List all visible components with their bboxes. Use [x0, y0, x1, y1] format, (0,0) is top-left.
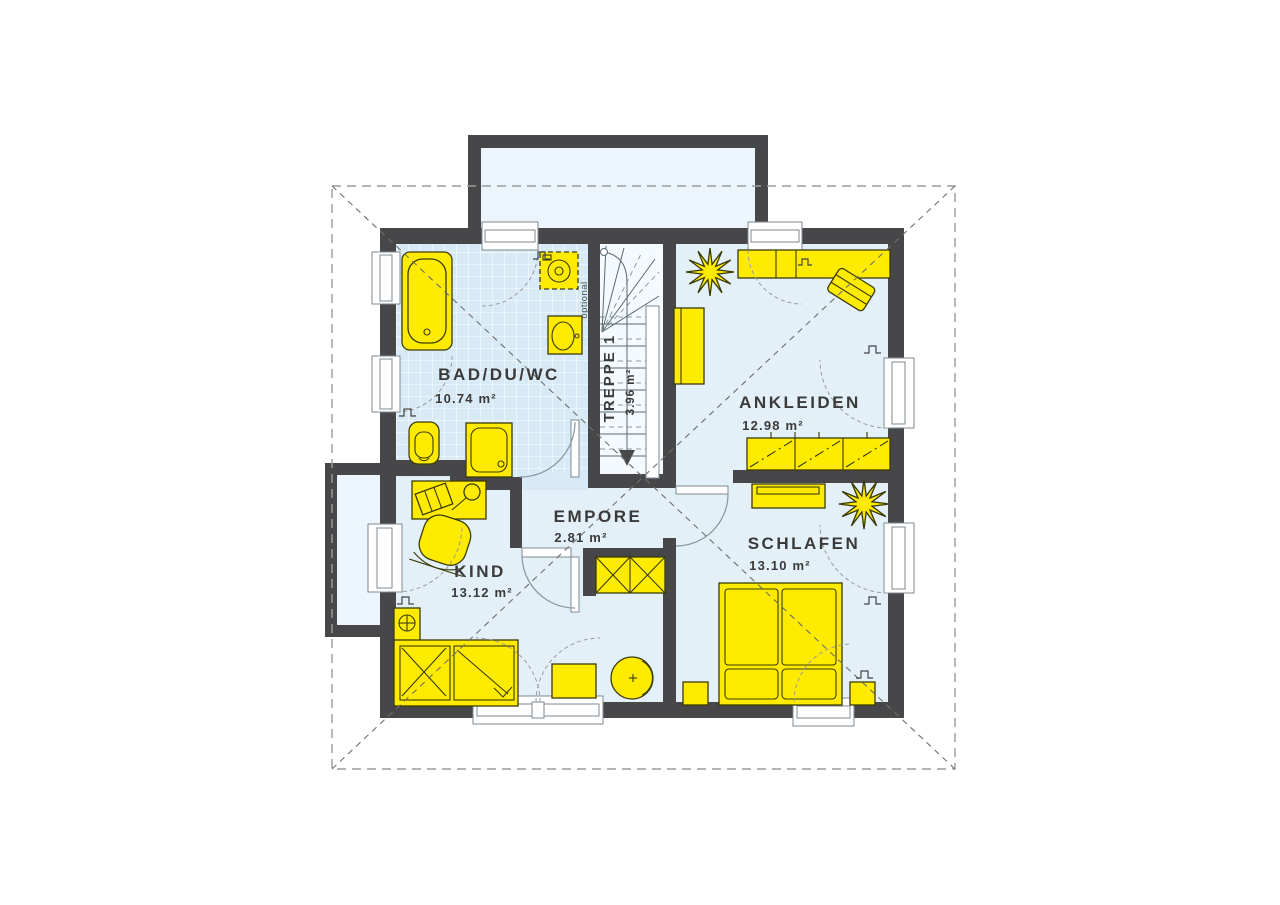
sideboard: [752, 484, 825, 508]
wall-stair-bottom: [588, 474, 676, 488]
wardrobe-row: [747, 432, 890, 470]
wall-stair-left: [588, 244, 600, 476]
room-area-ankleiden: 12.98 m²: [742, 418, 804, 433]
vanity-desk: [738, 250, 890, 278]
room-area-treppe: 3.96 m²: [625, 369, 637, 416]
window-schlafen-right: [884, 523, 914, 593]
nightstand-right: [850, 682, 875, 705]
nightstand-left: [683, 682, 708, 705]
stair-handrail: [646, 306, 659, 478]
optional-label: optional: [579, 281, 590, 318]
window-bath-top: [482, 222, 538, 250]
bathtub: [402, 252, 452, 350]
wall-empore-stub: [583, 548, 596, 596]
window-ankleiden-right: [884, 358, 914, 428]
room-label-empore: EMPORE: [554, 507, 643, 526]
shower: [466, 423, 512, 477]
dormer-floor: [481, 148, 755, 232]
floor-plan-page: BAD/DU/WC 10.74 m² TREPPE 1 3.96 m² ANKL…: [0, 0, 1280, 905]
room-area-bad: 10.74 m²: [435, 391, 497, 406]
room-label-treppe: TREPPE 1: [601, 334, 618, 423]
wardrobe-tall: [674, 308, 704, 384]
double-bed: [719, 583, 842, 705]
floor-plan-svg: BAD/DU/WC 10.74 m² TREPPE 1 3.96 m² ANKL…: [0, 0, 1280, 905]
room-label-schlafen: SCHLAFEN: [748, 534, 861, 553]
desk-lamp: [464, 484, 480, 500]
room-area-kind: 13.12 m²: [451, 585, 513, 600]
room-area-empore: 2.81 m²: [554, 530, 607, 545]
kind-desk: [412, 481, 486, 519]
kind-bed: [394, 640, 518, 706]
room-label-ankleiden: ANKLEIDEN: [739, 393, 861, 412]
toilet: [409, 422, 439, 464]
bath-sink: [548, 316, 582, 354]
window-bath-left-2: [372, 356, 400, 412]
wall-empore-west: [510, 477, 522, 548]
room-label-kind: KIND: [454, 562, 506, 581]
window-kind-balcony-door: [368, 524, 402, 592]
window-ankleiden-top: [748, 222, 802, 250]
room-label-bad: BAD/DU/WC: [438, 365, 560, 384]
armchair: [611, 657, 653, 699]
stool: [552, 664, 596, 698]
wall-ankleiden-south: [733, 470, 893, 483]
window-bath-left-1: [372, 252, 400, 304]
room-area-schlafen: 13.10 m²: [749, 558, 811, 573]
empore-cabinet: [596, 557, 665, 593]
washing-machine-optional: [540, 252, 578, 289]
dormer: [468, 135, 768, 232]
